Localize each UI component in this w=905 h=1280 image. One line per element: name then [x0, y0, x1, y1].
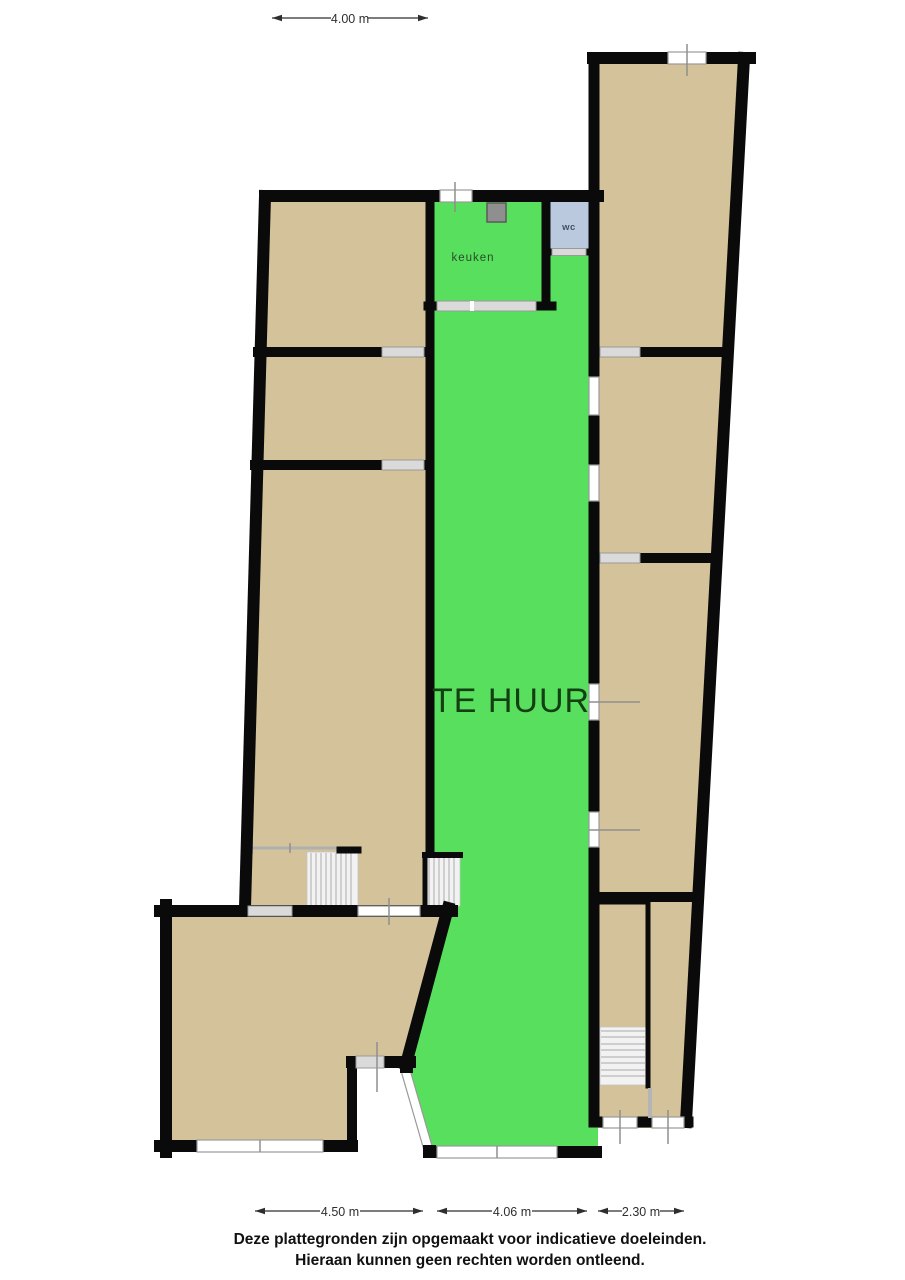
floorplan-page: TE HUUR keuken wc 4.00 m 4.50 m 4.06 m 2… [0, 0, 905, 1280]
room-left-wing [245, 190, 433, 911]
door-left-room2 [382, 460, 424, 470]
dimension-bottom-middle-label: 4.06 m [493, 1205, 531, 1219]
dimension-top: 4.00 m [272, 12, 428, 26]
kitchen-label: keuken [451, 252, 494, 264]
window-unit-east-1 [589, 377, 599, 415]
dimension-top-label: 4.00 m [331, 12, 369, 26]
disclaimer: Deze plattegronden zijn opgemaakt voor i… [234, 1231, 707, 1269]
door-left-room1 [382, 347, 424, 357]
kitchen-appliance [487, 203, 506, 222]
door-right-room2 [600, 553, 640, 563]
unit-label: TE HUUR [432, 682, 590, 720]
window-keuken [440, 190, 472, 202]
door-notch [356, 1056, 384, 1068]
staircase-right-wing [600, 1027, 646, 1085]
dimension-bottom-right-label: 2.30 m [622, 1205, 660, 1219]
dimension-bottom-left: 4.50 m [255, 1205, 423, 1219]
door-right-room1 [600, 347, 640, 357]
floorplan-canvas: TE HUUR keuken wc 4.00 m 4.50 m 4.06 m 2… [0, 0, 905, 1280]
disclaimer-line-2: Hieraan kunnen geen rechten worden ontle… [295, 1252, 645, 1269]
dimension-bottom-middle: 4.06 m [437, 1205, 587, 1219]
door-keuken [437, 301, 536, 311]
dimension-bottom-right: 2.30 m [598, 1205, 684, 1219]
staircase-unit-west [425, 855, 460, 906]
door-wc [552, 249, 586, 256]
disclaimer-line-1: Deze plattegronden zijn opgemaakt voor i… [234, 1231, 707, 1248]
room-bottom-left [160, 905, 452, 1152]
door-hall [248, 906, 292, 916]
dimension-bottom-left-label: 4.50 m [321, 1205, 359, 1219]
window-unit-east-2 [589, 465, 599, 501]
room-right-wing [593, 52, 750, 1128]
wc-label: wc [561, 222, 576, 233]
